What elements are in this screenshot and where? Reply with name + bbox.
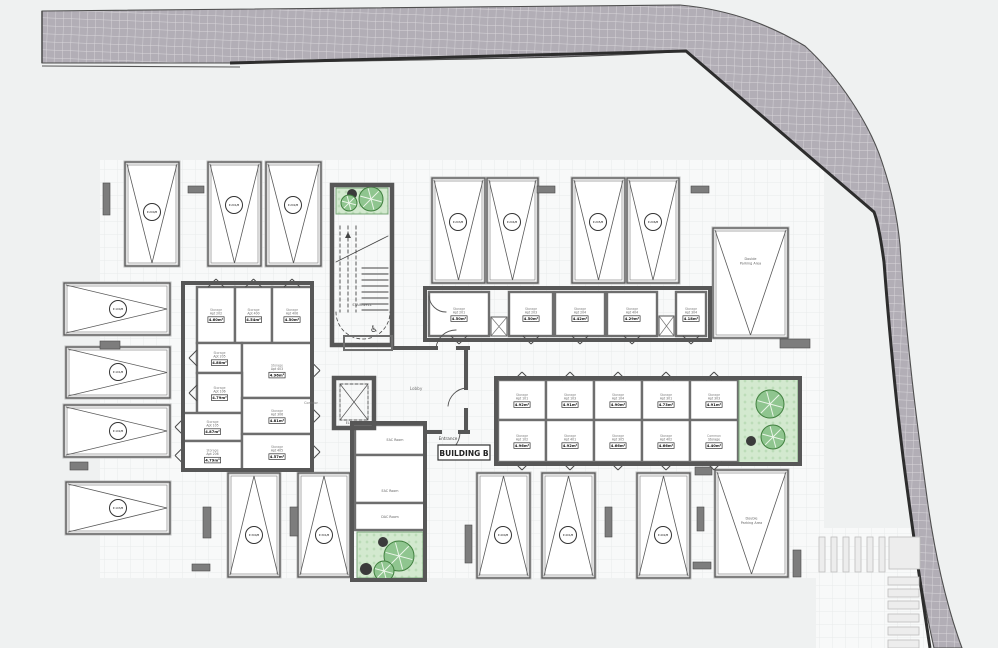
parking-space: P-300/B — [228, 473, 280, 577]
service-rooms-layer: EAC RoomEAC RoomDAC Room — [355, 425, 425, 530]
double-parking-space: DoubleParking Area — [715, 470, 788, 577]
corridor-label: Corridor — [304, 401, 318, 405]
entrance-label: Entrance — [439, 436, 458, 441]
parking-space: P-202/B — [266, 162, 321, 266]
label-text: 4.96m² — [515, 444, 530, 448]
parking-space: P-204/B — [487, 178, 538, 283]
label-text: Parking Area — [741, 521, 762, 525]
label-text: P-206/B — [648, 220, 659, 224]
label-text: Apt 104 — [612, 397, 624, 401]
parking-space: P-103/B — [66, 482, 170, 534]
vent-shaft — [491, 317, 507, 336]
shrub-icon — [746, 436, 756, 446]
label-text: P-201/B — [229, 203, 240, 207]
label-text: Apt 402 — [660, 438, 672, 442]
crosswalk-stripe — [888, 577, 919, 585]
label-text: 4.81m² — [270, 419, 285, 423]
structural-pillar — [793, 550, 801, 577]
storage-room: StorageApt 1064.79m² — [189, 373, 242, 413]
electrical-label: ELECTRICAL — [358, 344, 378, 348]
crosswalk-stripe — [867, 537, 873, 572]
storage-room: StorageApt 4064.50m² — [272, 279, 312, 343]
wheelchair-icon: ♿ — [370, 325, 378, 335]
service-room-walls — [355, 455, 425, 503]
vent-shaft — [659, 316, 674, 336]
double-parking-space: DoubleParking Area — [713, 228, 788, 338]
crosswalk-stripe — [888, 627, 919, 635]
storage-room: StorageApt 2034.50m² — [509, 292, 553, 344]
parking-space: P-206/B — [627, 178, 679, 283]
structural-pillar — [465, 525, 472, 563]
structural-pillar — [290, 507, 298, 536]
parking-space: P-402/B — [637, 473, 690, 578]
label-text: Apt 404 — [626, 311, 638, 315]
label-text: Apt 204 — [574, 311, 586, 315]
label-text: P-101/B — [113, 370, 124, 374]
label-text: 4.91m² — [563, 403, 578, 407]
elevator-label: ELEVATOR — [346, 421, 363, 425]
tree-icon — [756, 390, 784, 418]
label-text: P-205/B — [593, 220, 604, 224]
structural-pillar — [605, 507, 612, 537]
storage-room: StorageApt 4044.29m² — [607, 292, 657, 344]
floor-plan-page: P-200/BP-201/BP-202/BP-203/BP-204/BP-205… — [0, 0, 998, 648]
label-text: Apt 403 — [271, 367, 283, 371]
label-text: P-103/B — [113, 506, 124, 510]
parking-apron — [477, 473, 530, 578]
label-text: 4.29m² — [625, 317, 640, 321]
label-text: 4.79m² — [205, 459, 220, 463]
building-name-box: BUILDING B — [438, 445, 490, 460]
label-text: P-204/B — [507, 220, 518, 224]
label-text: 4.92m² — [563, 444, 578, 448]
label-text: P-301/B — [319, 533, 330, 537]
crosswalk-stripe — [831, 537, 837, 572]
service-room: DAC Room — [355, 503, 425, 530]
label-text: Apt 205 — [213, 355, 225, 359]
storage-room: StorageApt 2054.80m² — [189, 343, 242, 373]
label-text: Apt 106 — [213, 390, 225, 394]
structural-pillar — [691, 186, 709, 193]
label-text: 4.57m² — [270, 455, 285, 459]
label-text: 4.79m² — [212, 396, 227, 400]
parking-space: P-301/B — [298, 473, 350, 577]
label-text: Apt 105 — [206, 424, 218, 428]
label-text: P-202/B — [288, 203, 299, 207]
storage-room: StorageApt 4004.54m² — [235, 279, 272, 343]
label-text: Apt 206 — [206, 452, 218, 456]
crosswalk-stripe — [888, 601, 919, 609]
label-text: Apt 203 — [525, 311, 537, 315]
parking-apron — [542, 473, 595, 578]
pavement-square — [889, 537, 920, 569]
label-text: 4.73m² — [659, 403, 674, 407]
green-area — [357, 532, 423, 581]
structural-pillar — [780, 339, 810, 348]
parking-apron — [228, 473, 280, 577]
label-text: 4.66m² — [659, 444, 674, 448]
label-text: P-200/B — [147, 210, 158, 214]
crosswalk-stripe — [879, 537, 885, 572]
crosswalk-stripe — [888, 640, 919, 648]
structural-pillar — [537, 186, 555, 193]
label-text: 4.50m² — [524, 317, 539, 321]
structural-pillar — [693, 562, 711, 569]
parking-space: P-205/B — [572, 178, 625, 283]
label-text: 4.60m² — [209, 318, 224, 322]
tree-icon — [341, 195, 357, 211]
parking-space: P-201/B — [208, 162, 261, 266]
label-text: DAC Room — [381, 515, 398, 519]
storage-room: StorageApt 2024.60m² — [197, 279, 235, 343]
tree-icon — [359, 187, 383, 211]
crosswalk-stripe — [843, 537, 849, 572]
structural-pillar — [103, 183, 110, 215]
structural-pillar — [70, 462, 88, 470]
label-text: P-203/B — [453, 220, 464, 224]
label-text: Apt 201 — [453, 311, 465, 315]
label-text: 4.54m² — [246, 318, 261, 322]
structural-pillar — [192, 564, 210, 571]
structural-pillar — [188, 186, 204, 193]
label-text: 4.92m² — [515, 403, 530, 407]
label-text: Apt 401 — [564, 438, 576, 442]
parking-space: P-100/B — [64, 283, 170, 335]
structural-pillar — [100, 341, 120, 349]
structural-pillar — [697, 507, 704, 531]
label-text: EAC Room — [386, 438, 403, 442]
label-text: 4.18m² — [684, 317, 699, 321]
parking-space: P-101/B — [66, 347, 170, 398]
label-text: Apt 202 — [210, 312, 222, 316]
parking-apron — [266, 162, 321, 266]
parking-apron — [208, 162, 261, 266]
label-text: 4.87m² — [205, 430, 220, 434]
label-text: Apt 101 — [516, 397, 528, 401]
structural-pillar — [203, 507, 211, 538]
green-area — [336, 187, 388, 214]
green-area — [739, 378, 798, 464]
building-name-label: BUILDING B — [439, 449, 488, 458]
service-room: EAC Room — [355, 455, 425, 503]
shrub-icon — [378, 537, 388, 547]
storage-room: StorageApt 1054.87m² — [175, 413, 242, 441]
tree-icon — [761, 425, 785, 449]
label-text: 4.40m² — [707, 444, 722, 448]
crosswalk-stripe — [888, 589, 919, 597]
shrub-icon — [360, 563, 372, 575]
label-text: 4.80m² — [212, 361, 227, 365]
parking-space: P-401/B — [542, 473, 595, 578]
label-text: Parking Area — [740, 262, 761, 266]
label-text: P-100/B — [113, 307, 124, 311]
label-text: P-102/B — [113, 429, 124, 433]
stairwell-label: STAIRWELL — [352, 303, 371, 307]
label-text: 4.50m² — [285, 318, 300, 322]
parking-space: P-203/B — [432, 178, 485, 283]
label-text: Apt 103 — [564, 397, 576, 401]
crosswalk-stripe — [855, 537, 861, 572]
label-text: Double — [744, 257, 756, 261]
label-text: 4.66m² — [611, 444, 626, 448]
storage-room: StorageApt 3044.18m² — [676, 292, 706, 344]
parking-apron — [637, 473, 690, 578]
label-text: Apt 400 — [247, 312, 259, 316]
parking-space: P-200/B — [125, 162, 179, 266]
storage-room: StorageApt 2044.42m² — [555, 292, 605, 344]
label-text: 4.90m² — [611, 403, 626, 407]
storage-room: StorageApt 2014.50m² — [429, 292, 489, 344]
parking-apron — [298, 473, 350, 577]
label-text: Apt 406 — [286, 312, 298, 316]
label-text: Storage — [708, 438, 720, 442]
label-text: Apt 304 — [685, 311, 697, 315]
label-text: P-402/B — [658, 533, 669, 537]
parking-apron — [713, 228, 788, 338]
crosswalk-stripe — [888, 614, 919, 622]
storage-room: StorageApt 4054.57m² — [242, 434, 320, 470]
crosswalk-stripe — [819, 537, 825, 572]
label-text: Apt 405 — [271, 449, 283, 453]
lobby-label: Lobby — [410, 386, 423, 391]
parking-space: P-102/B — [64, 405, 170, 457]
parking-space: P-400/B — [477, 473, 530, 578]
floor-plan-drawing: P-200/BP-201/BP-202/BP-203/BP-204/BP-205… — [0, 0, 998, 648]
label-text: Double — [745, 517, 757, 521]
structural-pillar — [695, 467, 712, 475]
label-text: Apt 301 — [660, 397, 672, 401]
label-text: Apt 305 — [612, 438, 624, 442]
label-text: Apt 303 — [708, 397, 720, 401]
storage-room: StorageApt 4034.96m² — [242, 343, 320, 398]
label-text: P-401/B — [563, 533, 574, 537]
label-text: 4.50m² — [452, 317, 467, 321]
label-text: Apt 306 — [271, 413, 283, 417]
label-text: P-400/B — [498, 533, 509, 537]
storage-room: StorageApt 2064.79m² — [175, 441, 242, 470]
label-text: 4.42m² — [573, 317, 588, 321]
label-text: 4.91m² — [707, 403, 722, 407]
label-text: EAC Room — [381, 489, 398, 493]
label-text: P-300/B — [249, 533, 260, 537]
label-text: Apt 102 — [516, 438, 528, 442]
label-text: 4.96m² — [270, 374, 285, 378]
